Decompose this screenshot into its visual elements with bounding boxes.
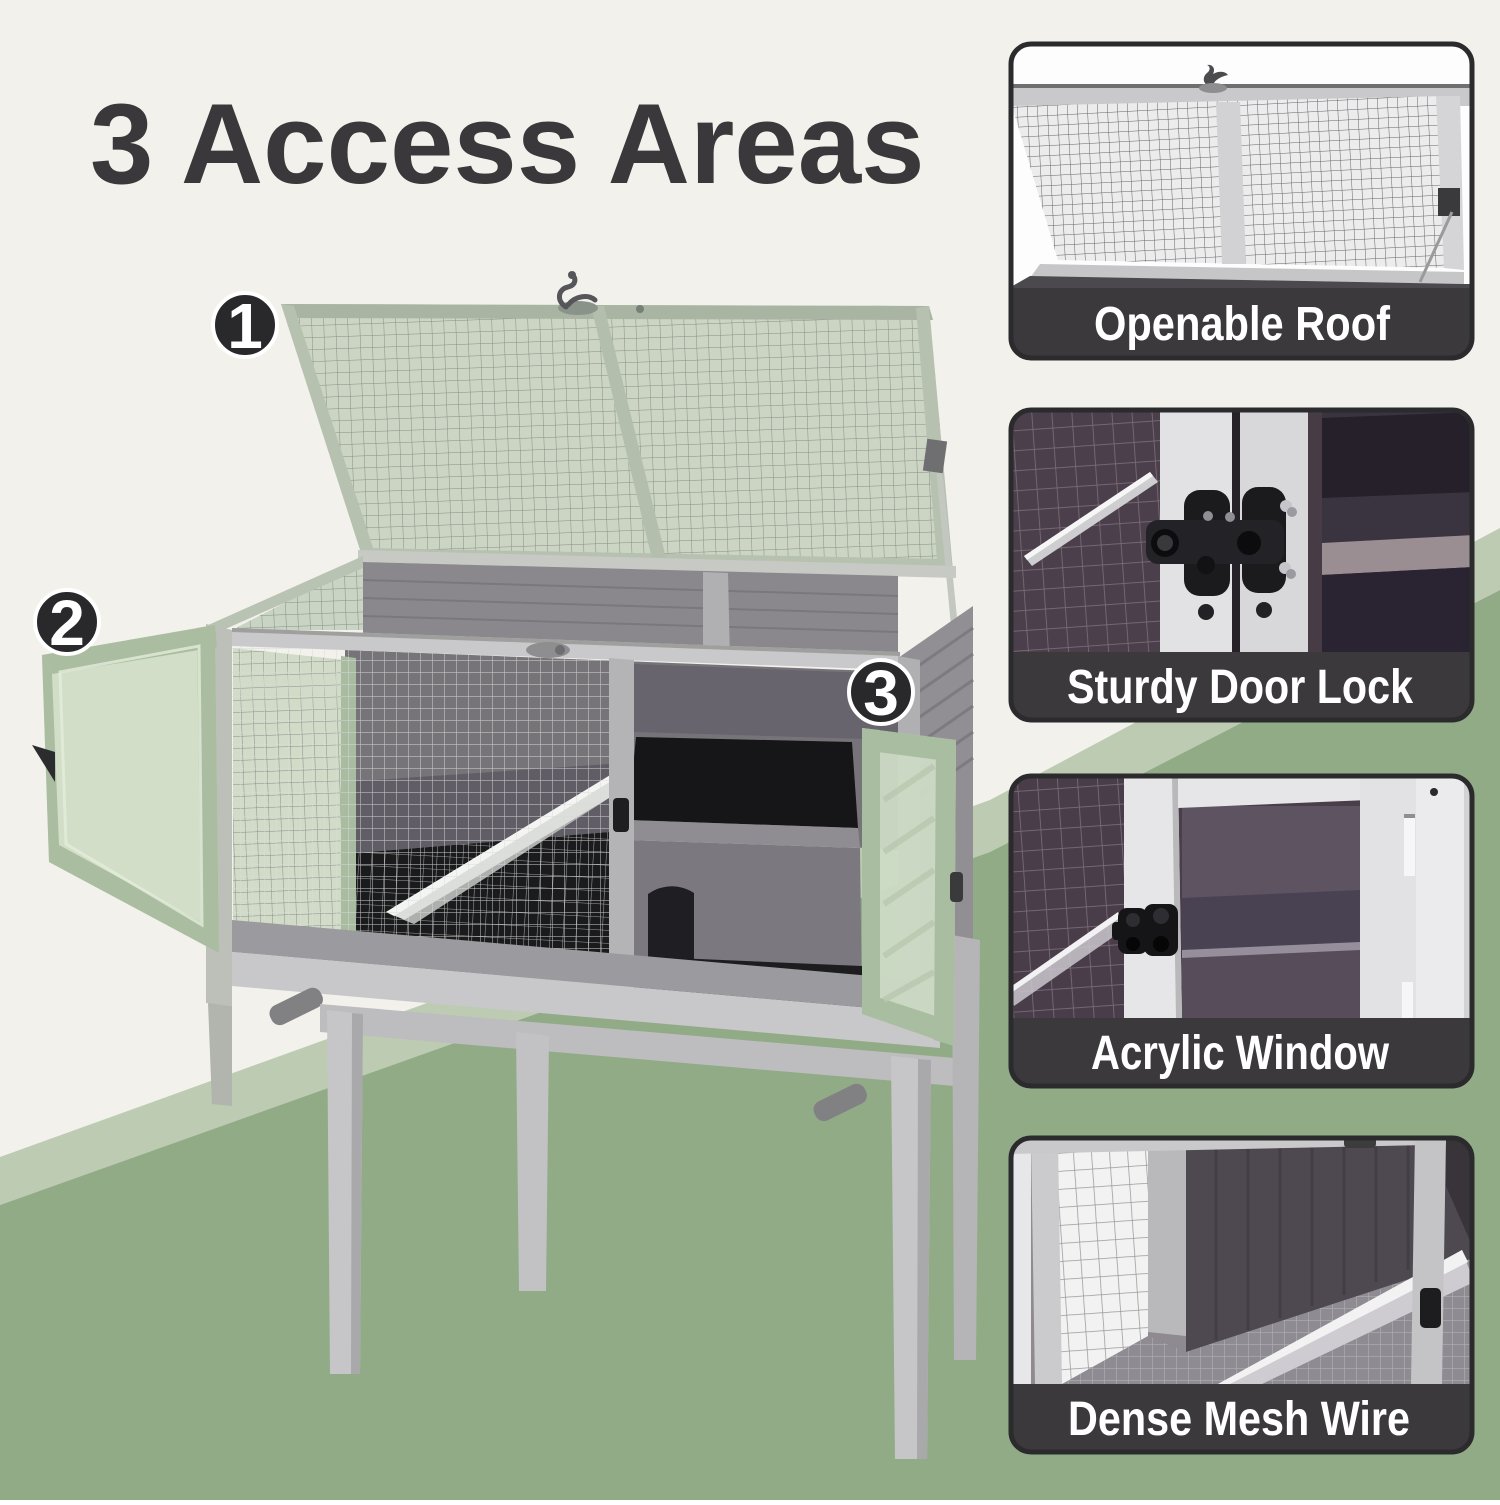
- svg-text:2: 2: [49, 587, 85, 659]
- svg-text:3 Access Areas: 3 Access Areas: [90, 81, 925, 208]
- svg-text:Dense Mesh Wire: Dense Mesh Wire: [1068, 1393, 1410, 1446]
- svg-text:Acrylic Window: Acrylic Window: [1091, 1027, 1390, 1080]
- svg-text:Sturdy Door Lock: Sturdy Door Lock: [1067, 661, 1413, 714]
- svg-text:Openable Roof: Openable Roof: [1094, 298, 1391, 351]
- svg-text:1: 1: [227, 290, 263, 362]
- svg-text:3: 3: [863, 657, 899, 729]
